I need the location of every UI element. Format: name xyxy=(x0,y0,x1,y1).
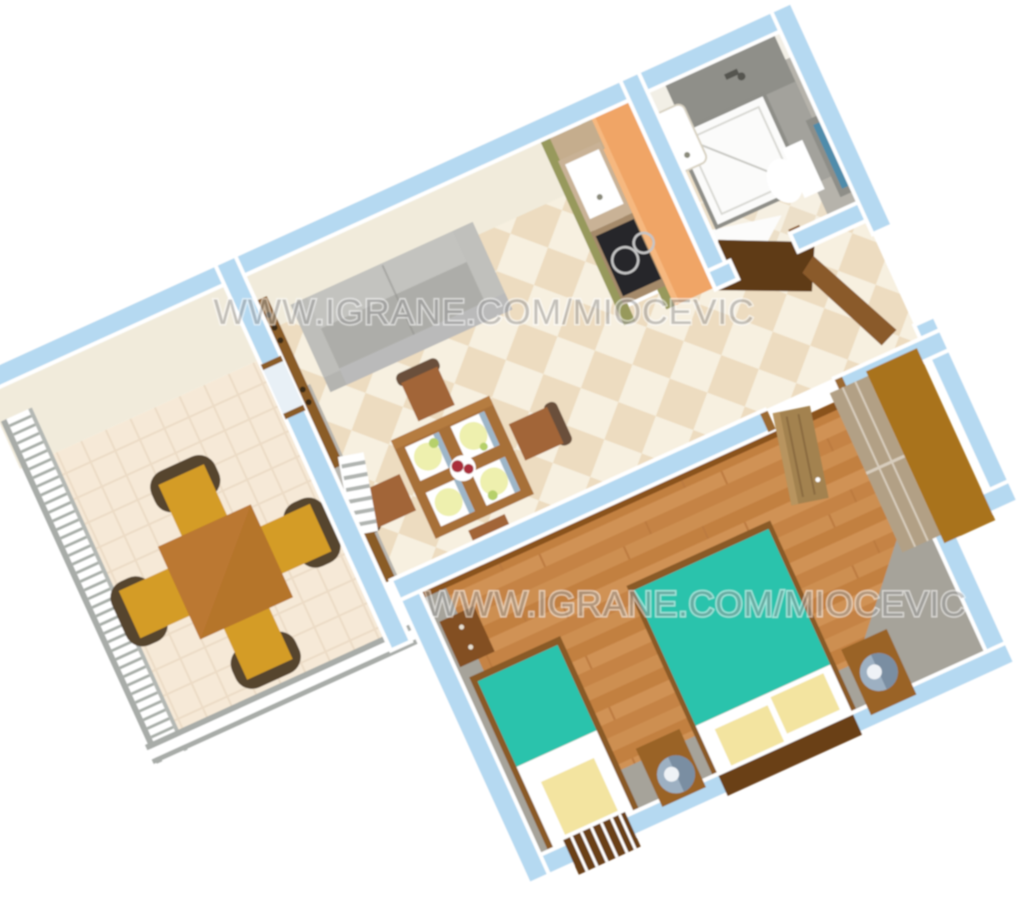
svg-text:WWW.IGRANE.COM/MIOCEVIC: WWW.IGRANE.COM/MIOCEVIC xyxy=(213,292,754,332)
svg-text:WWW.IGRANE.COM/MIOCEVIC: WWW.IGRANE.COM/MIOCEVIC xyxy=(425,584,966,624)
